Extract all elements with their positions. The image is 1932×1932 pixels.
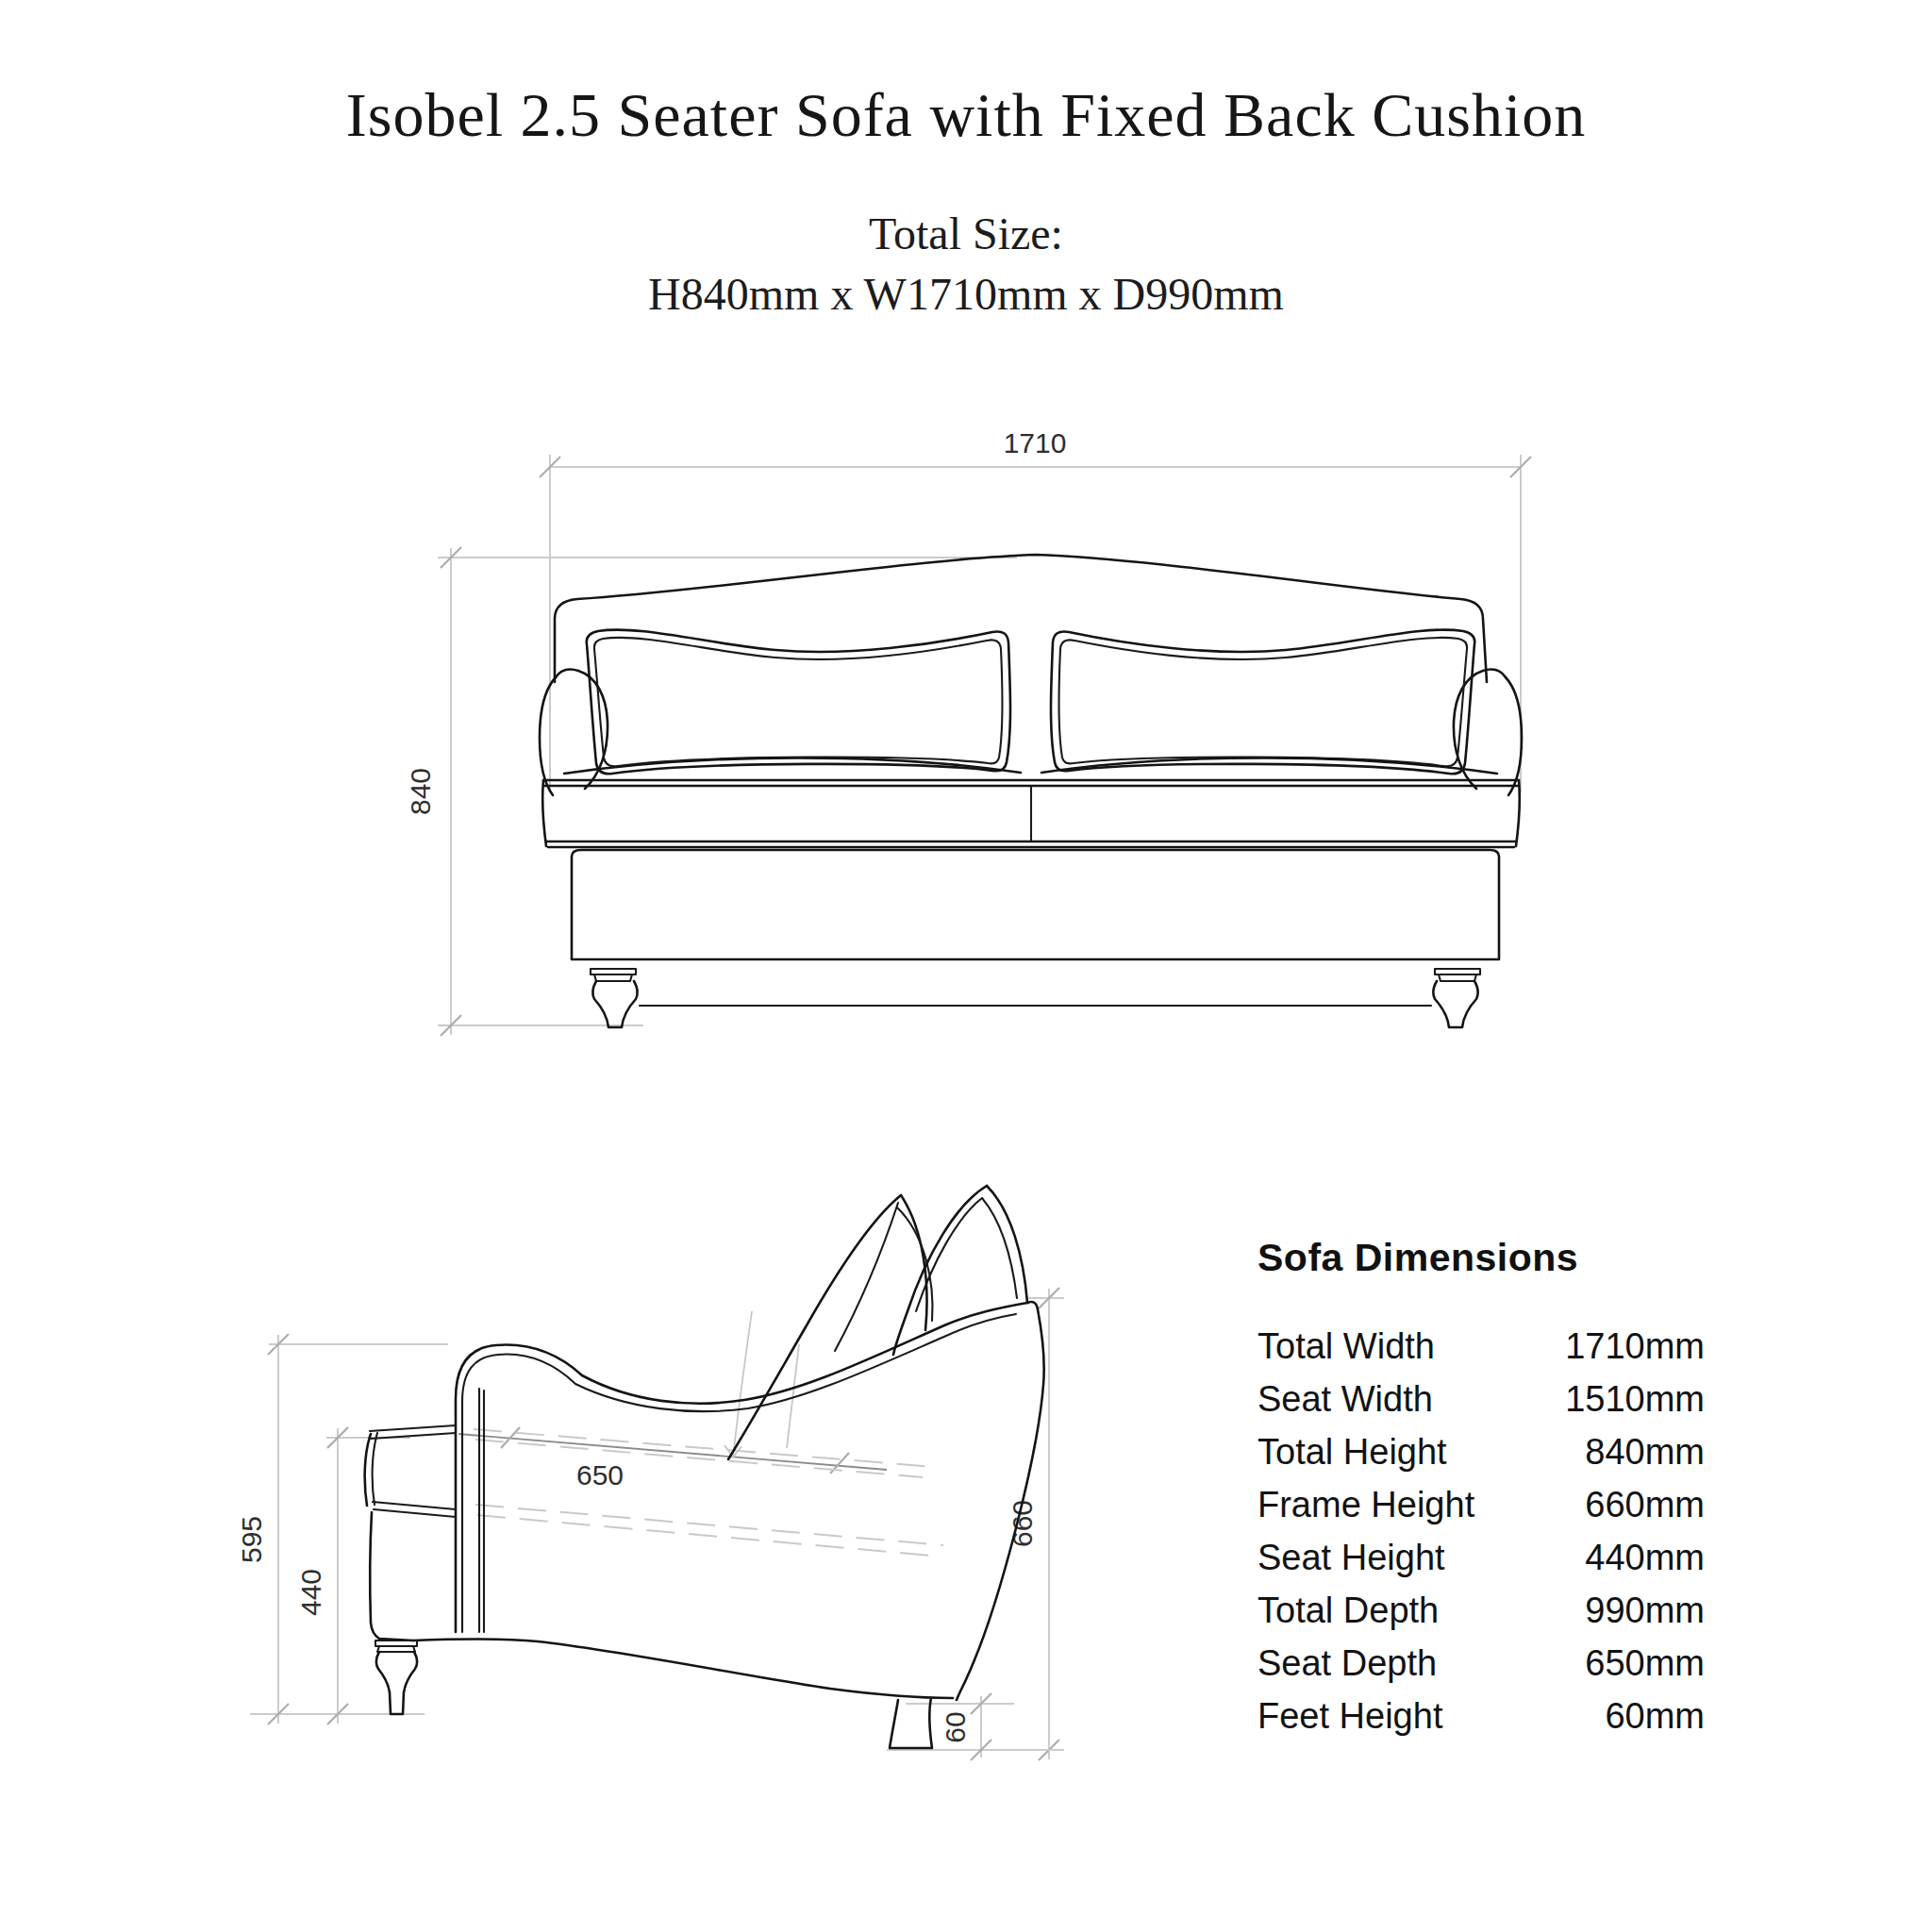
row-value: 1510mm [1565, 1379, 1705, 1420]
side-dimension-lines: 595 440 650 660 60 [236, 1288, 1064, 1760]
front-cushion-left-edge [728, 1195, 901, 1459]
side-back-foot [890, 1698, 932, 1748]
table-row: Total Depth 990mm [1257, 1584, 1705, 1637]
side-arm-height-label: 595 [236, 1516, 267, 1563]
sofa-front-outline [540, 555, 1522, 1027]
front-back-frame [555, 555, 1487, 682]
side-arm-front-panel [365, 1425, 456, 1517]
front-dimension-lines: 1710 840 [405, 427, 1531, 1036]
sofa-dimensions-table: Sofa Dimensions Total Width 1710mm Seat … [1257, 1236, 1705, 1742]
front-right-arm-outer [1506, 677, 1522, 795]
front-left-pillow-piping [594, 638, 1003, 766]
side-bottom-swoop [413, 1640, 953, 1698]
side-elevation-drawing: 595 440 650 660 60 [226, 1170, 1094, 1811]
front-right-pillow-outer [1051, 630, 1474, 774]
front-elevation-svg: 1710 840 [396, 415, 1585, 1057]
front-width-dimension-label: 1710 [1004, 427, 1067, 458]
side-seat-depth-line [458, 1434, 887, 1470]
row-value: 60mm [1605, 1696, 1705, 1737]
page-title: Isobel 2.5 Seater Sofa with Fixed Back C… [0, 79, 1932, 151]
table-row: Seat Width 1510mm [1257, 1373, 1705, 1425]
side-feet-height-label: 60 [940, 1711, 971, 1742]
row-label: Total Height [1257, 1432, 1447, 1473]
front-left-arm-outer [540, 677, 556, 795]
sofa-side-outline [365, 1186, 1044, 1748]
total-size-label: Total Size: [0, 208, 1932, 259]
front-base-band [572, 850, 1499, 959]
row-label: Seat Depth [1257, 1643, 1437, 1684]
front-seat-piping-bottom [546, 841, 1516, 847]
table-row: Frame Height 660mm [1257, 1478, 1705, 1531]
side-seat-height-label: 440 [295, 1569, 326, 1616]
front-left-leg [591, 969, 638, 1027]
row-value: 840mm [1585, 1432, 1705, 1473]
side-seat-depth-label: 650 [576, 1459, 624, 1491]
row-label: Total Depth [1257, 1591, 1439, 1631]
side-front-leg [375, 1641, 417, 1714]
row-value: 440mm [1585, 1538, 1705, 1578]
front-height-dimension-label: 840 [405, 768, 436, 815]
table-heading: Sofa Dimensions [1257, 1236, 1705, 1280]
front-cushion-crease [835, 1203, 898, 1351]
side-arm-inner-edge [479, 1389, 484, 1632]
table-row: Feet Height 60mm [1257, 1690, 1705, 1742]
front-right-pillow-piping [1058, 638, 1467, 766]
side-hidden-seat-lines [474, 1311, 943, 1556]
side-arm-sweep-outer [456, 1303, 1027, 1632]
table-row: Total Width 1710mm [1257, 1320, 1705, 1373]
row-value: 660mm [1585, 1485, 1705, 1525]
side-front-face [370, 1512, 413, 1641]
row-value: 990mm [1585, 1591, 1705, 1631]
side-elevation-svg: 595 440 650 660 60 [226, 1170, 1094, 1811]
row-value: 650mm [1585, 1643, 1705, 1684]
front-elevation-drawing: 1710 840 [396, 415, 1585, 1057]
front-right-leg [1433, 969, 1480, 1027]
table-row: Total Height 840mm [1257, 1425, 1705, 1478]
outer-cushion-right-edge [987, 1186, 1027, 1303]
spec-sheet-page: { "header": { "title": "Isobel 2.5 Seate… [0, 0, 1932, 1932]
table-row: Seat Depth 650mm [1257, 1637, 1705, 1690]
total-size-value: H840mm x W1710mm x D990mm [0, 268, 1932, 320]
front-left-pillow-outer [587, 630, 1010, 774]
row-value: 1710mm [1565, 1326, 1705, 1367]
row-label: Seat Width [1257, 1379, 1433, 1420]
row-label: Frame Height [1257, 1485, 1474, 1525]
row-label: Total Width [1257, 1326, 1435, 1367]
outer-cushion-left-edge [893, 1186, 987, 1355]
row-label: Seat Height [1257, 1538, 1445, 1578]
side-arm-sweep-piping [462, 1314, 1016, 1632]
table-row: Seat Height 440mm [1257, 1531, 1705, 1584]
row-label: Feet Height [1257, 1696, 1442, 1737]
